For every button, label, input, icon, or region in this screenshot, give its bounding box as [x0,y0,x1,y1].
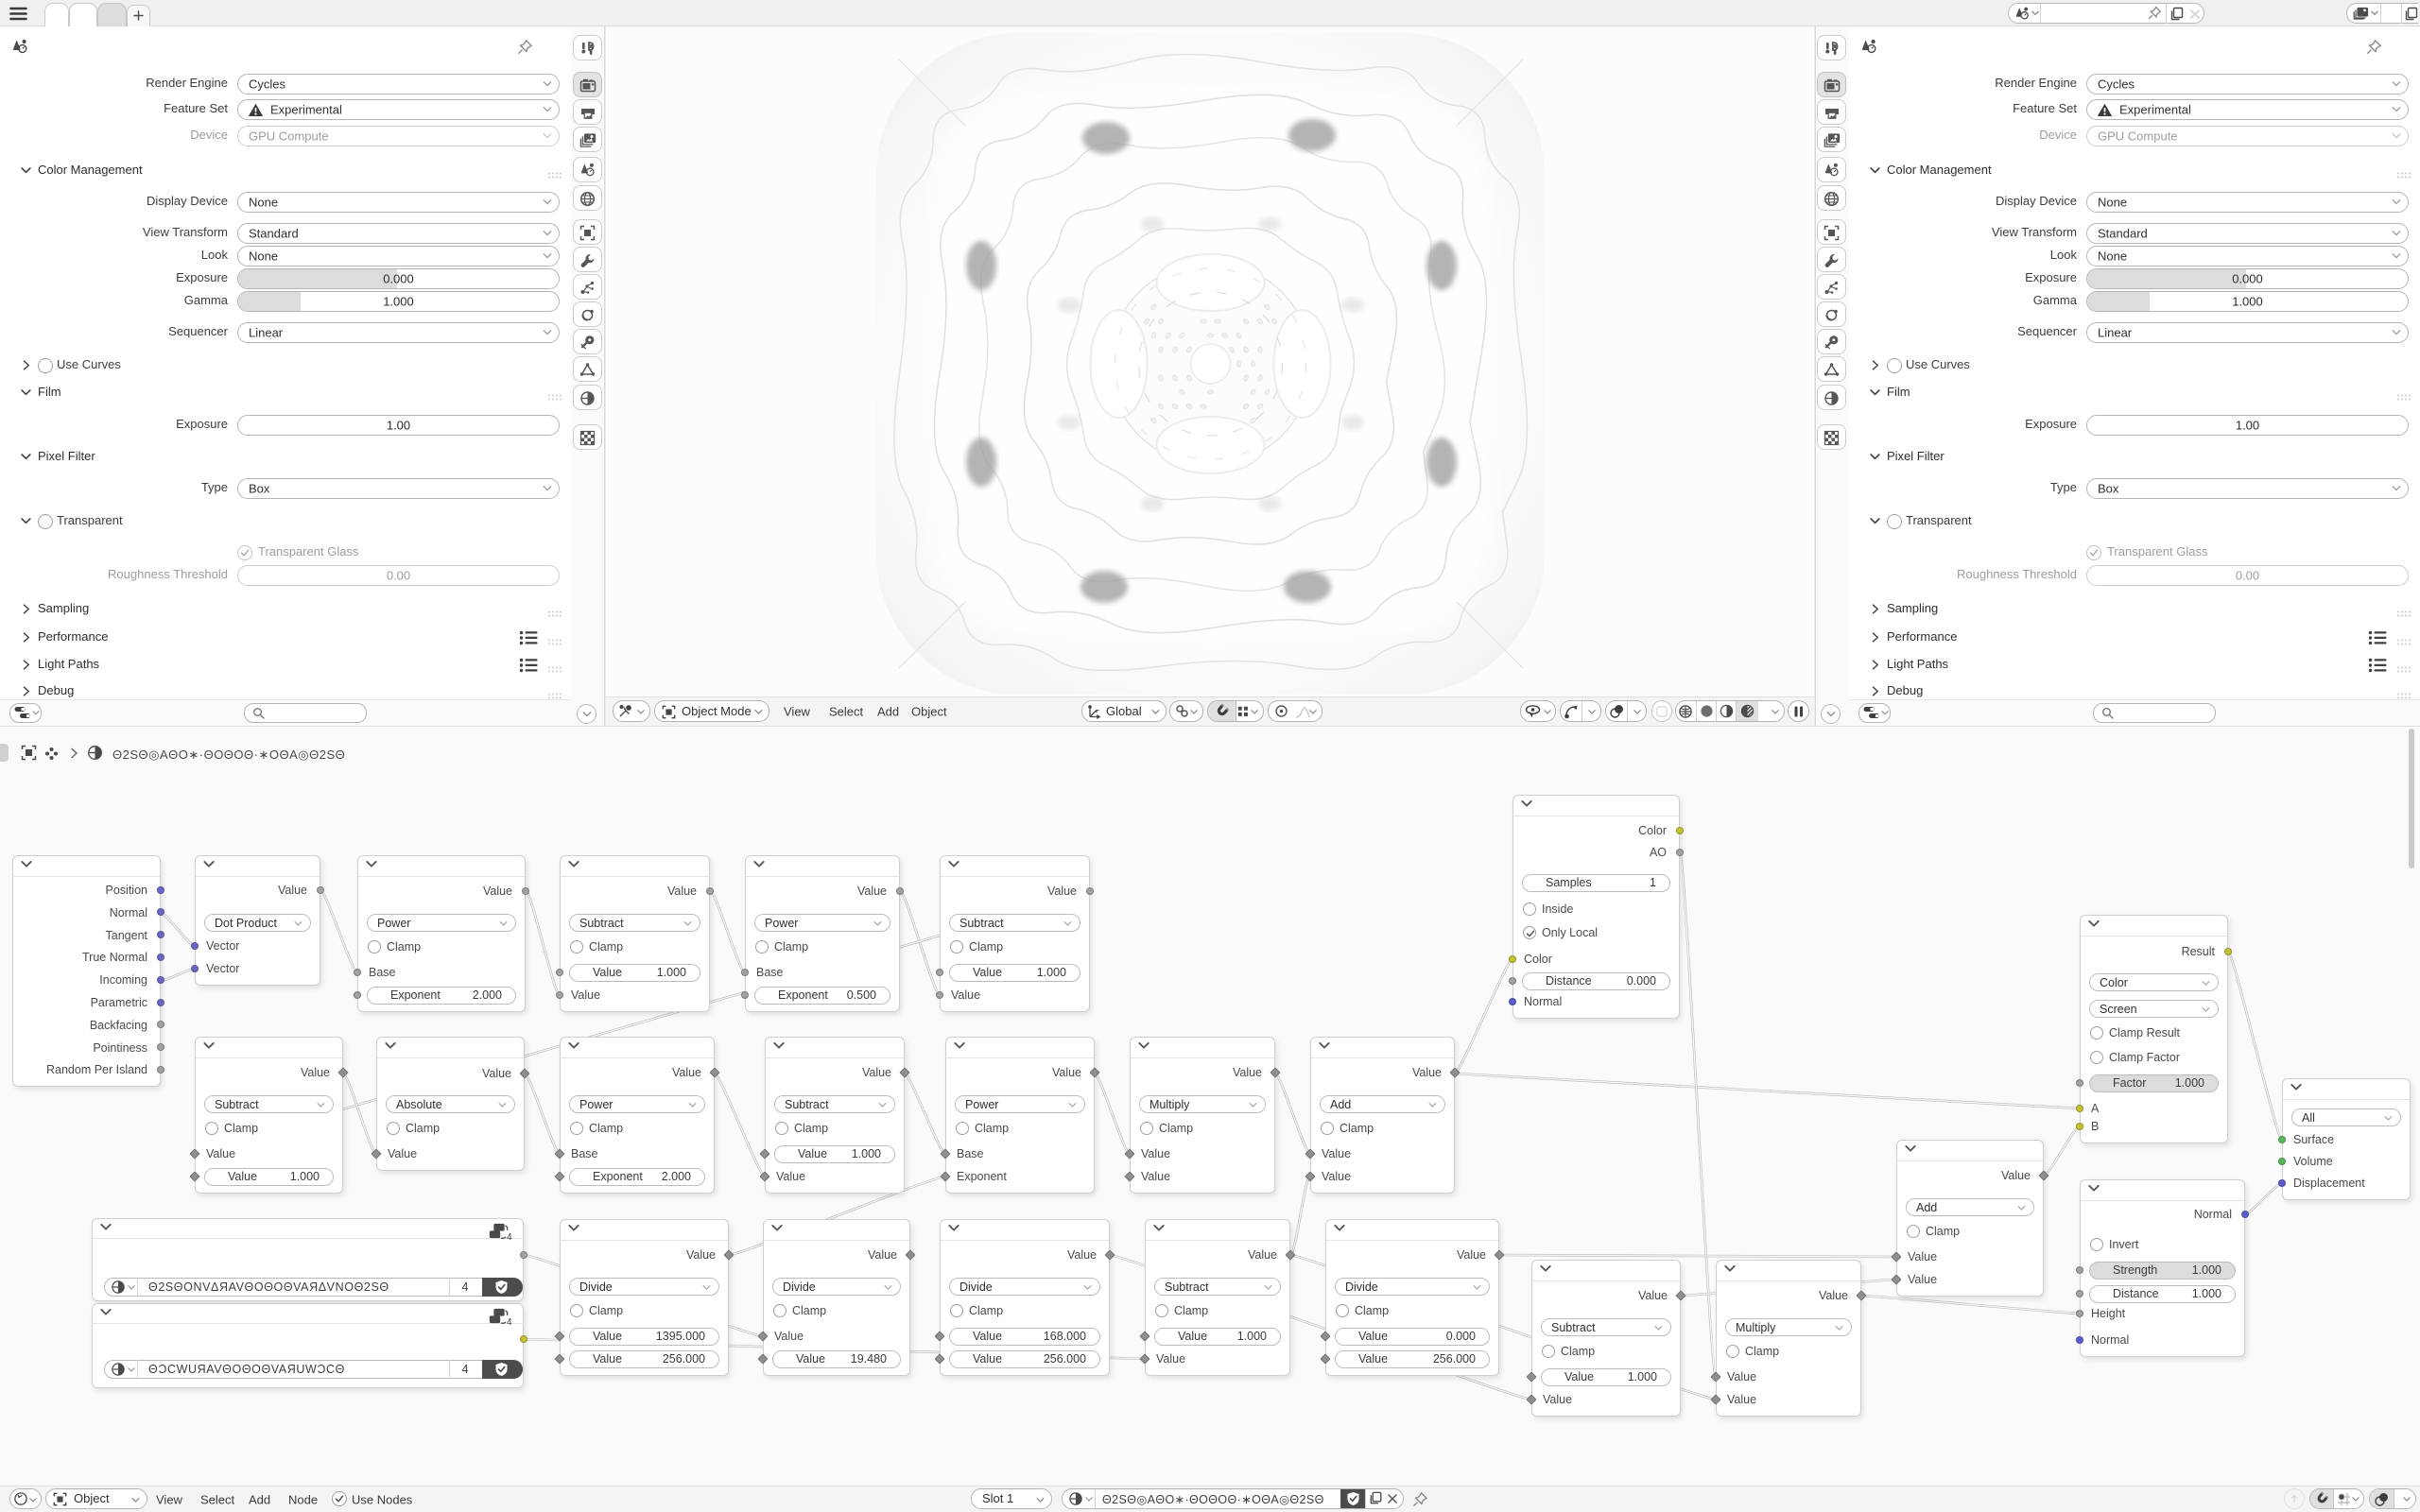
svg-text:4: 4 [507,1232,512,1242]
svg-text:4: 4 [507,1317,512,1327]
